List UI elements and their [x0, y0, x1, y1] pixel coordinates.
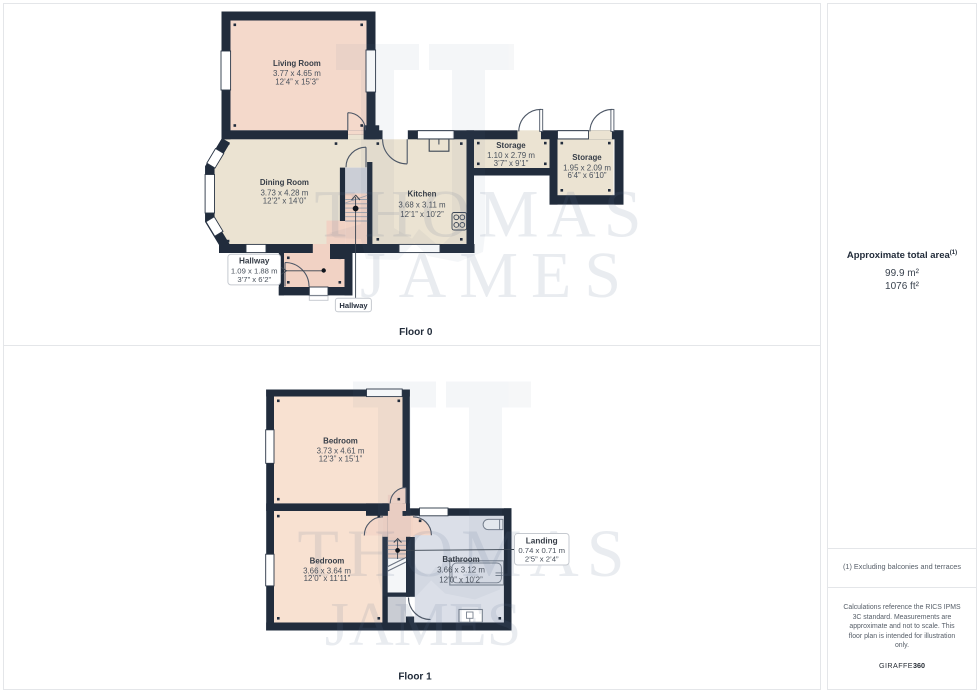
- svg-text:Hallway: Hallway: [239, 256, 270, 265]
- svg-text:12’3” x 15’1”: 12’3” x 15’1”: [319, 455, 363, 464]
- svg-text:Storage: Storage: [496, 141, 526, 150]
- svg-text:Floor 1: Floor 1: [398, 672, 432, 683]
- svg-text:3.68 x 3.11 m: 3.68 x 3.11 m: [398, 200, 446, 209]
- svg-text:Hallway: Hallway: [339, 301, 368, 310]
- svg-text:12’4” x 15’3”: 12’4” x 15’3”: [275, 77, 319, 86]
- svg-text:Dining Room: Dining Room: [260, 178, 309, 187]
- svg-text:3’7” x 6’2”: 3’7” x 6’2”: [237, 275, 271, 284]
- svg-text:12’0” x 10’2”: 12’0” x 10’2”: [439, 576, 483, 585]
- svg-text:JAMES: JAMES: [325, 591, 521, 659]
- svg-text:12’1” x 10’2”: 12’1” x 10’2”: [400, 210, 444, 219]
- svg-text:Landing: Landing: [526, 537, 558, 546]
- svg-text:12’0” x 11’11”: 12’0” x 11’11”: [304, 574, 351, 583]
- svg-text:3.66 x 3.12 m: 3.66 x 3.12 m: [437, 566, 485, 575]
- svg-text:12’2” x 14’0”: 12’2” x 14’0”: [263, 197, 307, 206]
- svg-text:3’7” x 9’1”: 3’7” x 9’1”: [494, 159, 529, 168]
- svg-text:6’4” x 6’10”: 6’4” x 6’10”: [567, 171, 606, 180]
- svg-text:Storage: Storage: [572, 153, 602, 162]
- svg-text:Bedroom: Bedroom: [310, 557, 345, 566]
- svg-text:Living Room: Living Room: [273, 59, 321, 68]
- svg-text:Kitchen: Kitchen: [408, 190, 437, 199]
- svg-text:JAMES: JAMES: [360, 239, 634, 312]
- svg-text:2’5” x 2’4”: 2’5” x 2’4”: [525, 554, 559, 563]
- svg-text:Floor 0: Floor 0: [399, 327, 433, 338]
- svg-text:Bedroom: Bedroom: [323, 437, 358, 446]
- svg-text:Bathroom: Bathroom: [442, 555, 479, 564]
